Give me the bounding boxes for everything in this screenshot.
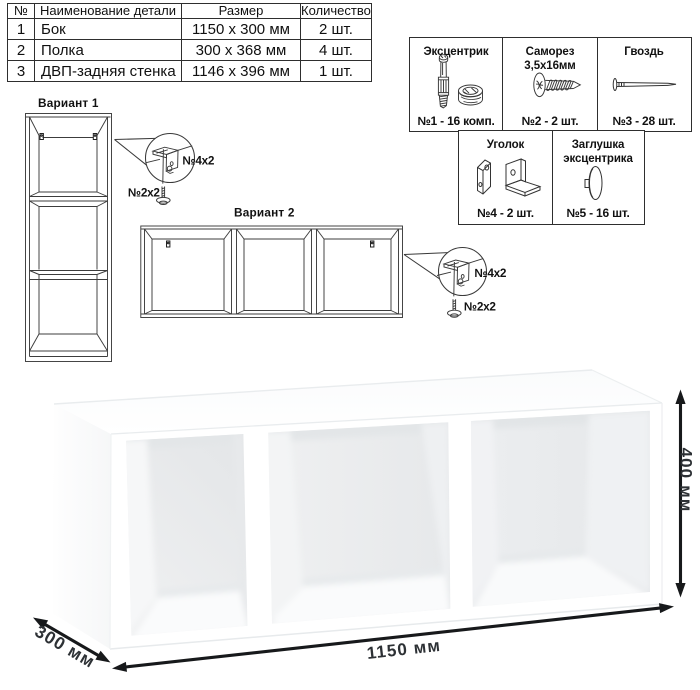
svg-text:№4х2: №4х2 <box>183 154 215 168</box>
svg-text:400 мм: 400 мм <box>677 448 696 513</box>
svg-text:№4х2: №4х2 <box>475 266 507 280</box>
svg-text:Вариант 1: Вариант 1 <box>38 96 99 110</box>
svg-text:№2х2: №2х2 <box>128 186 160 200</box>
svg-text:Вариант 2: Вариант 2 <box>234 206 295 220</box>
svg-text:№2х2: №2х2 <box>464 299 496 313</box>
